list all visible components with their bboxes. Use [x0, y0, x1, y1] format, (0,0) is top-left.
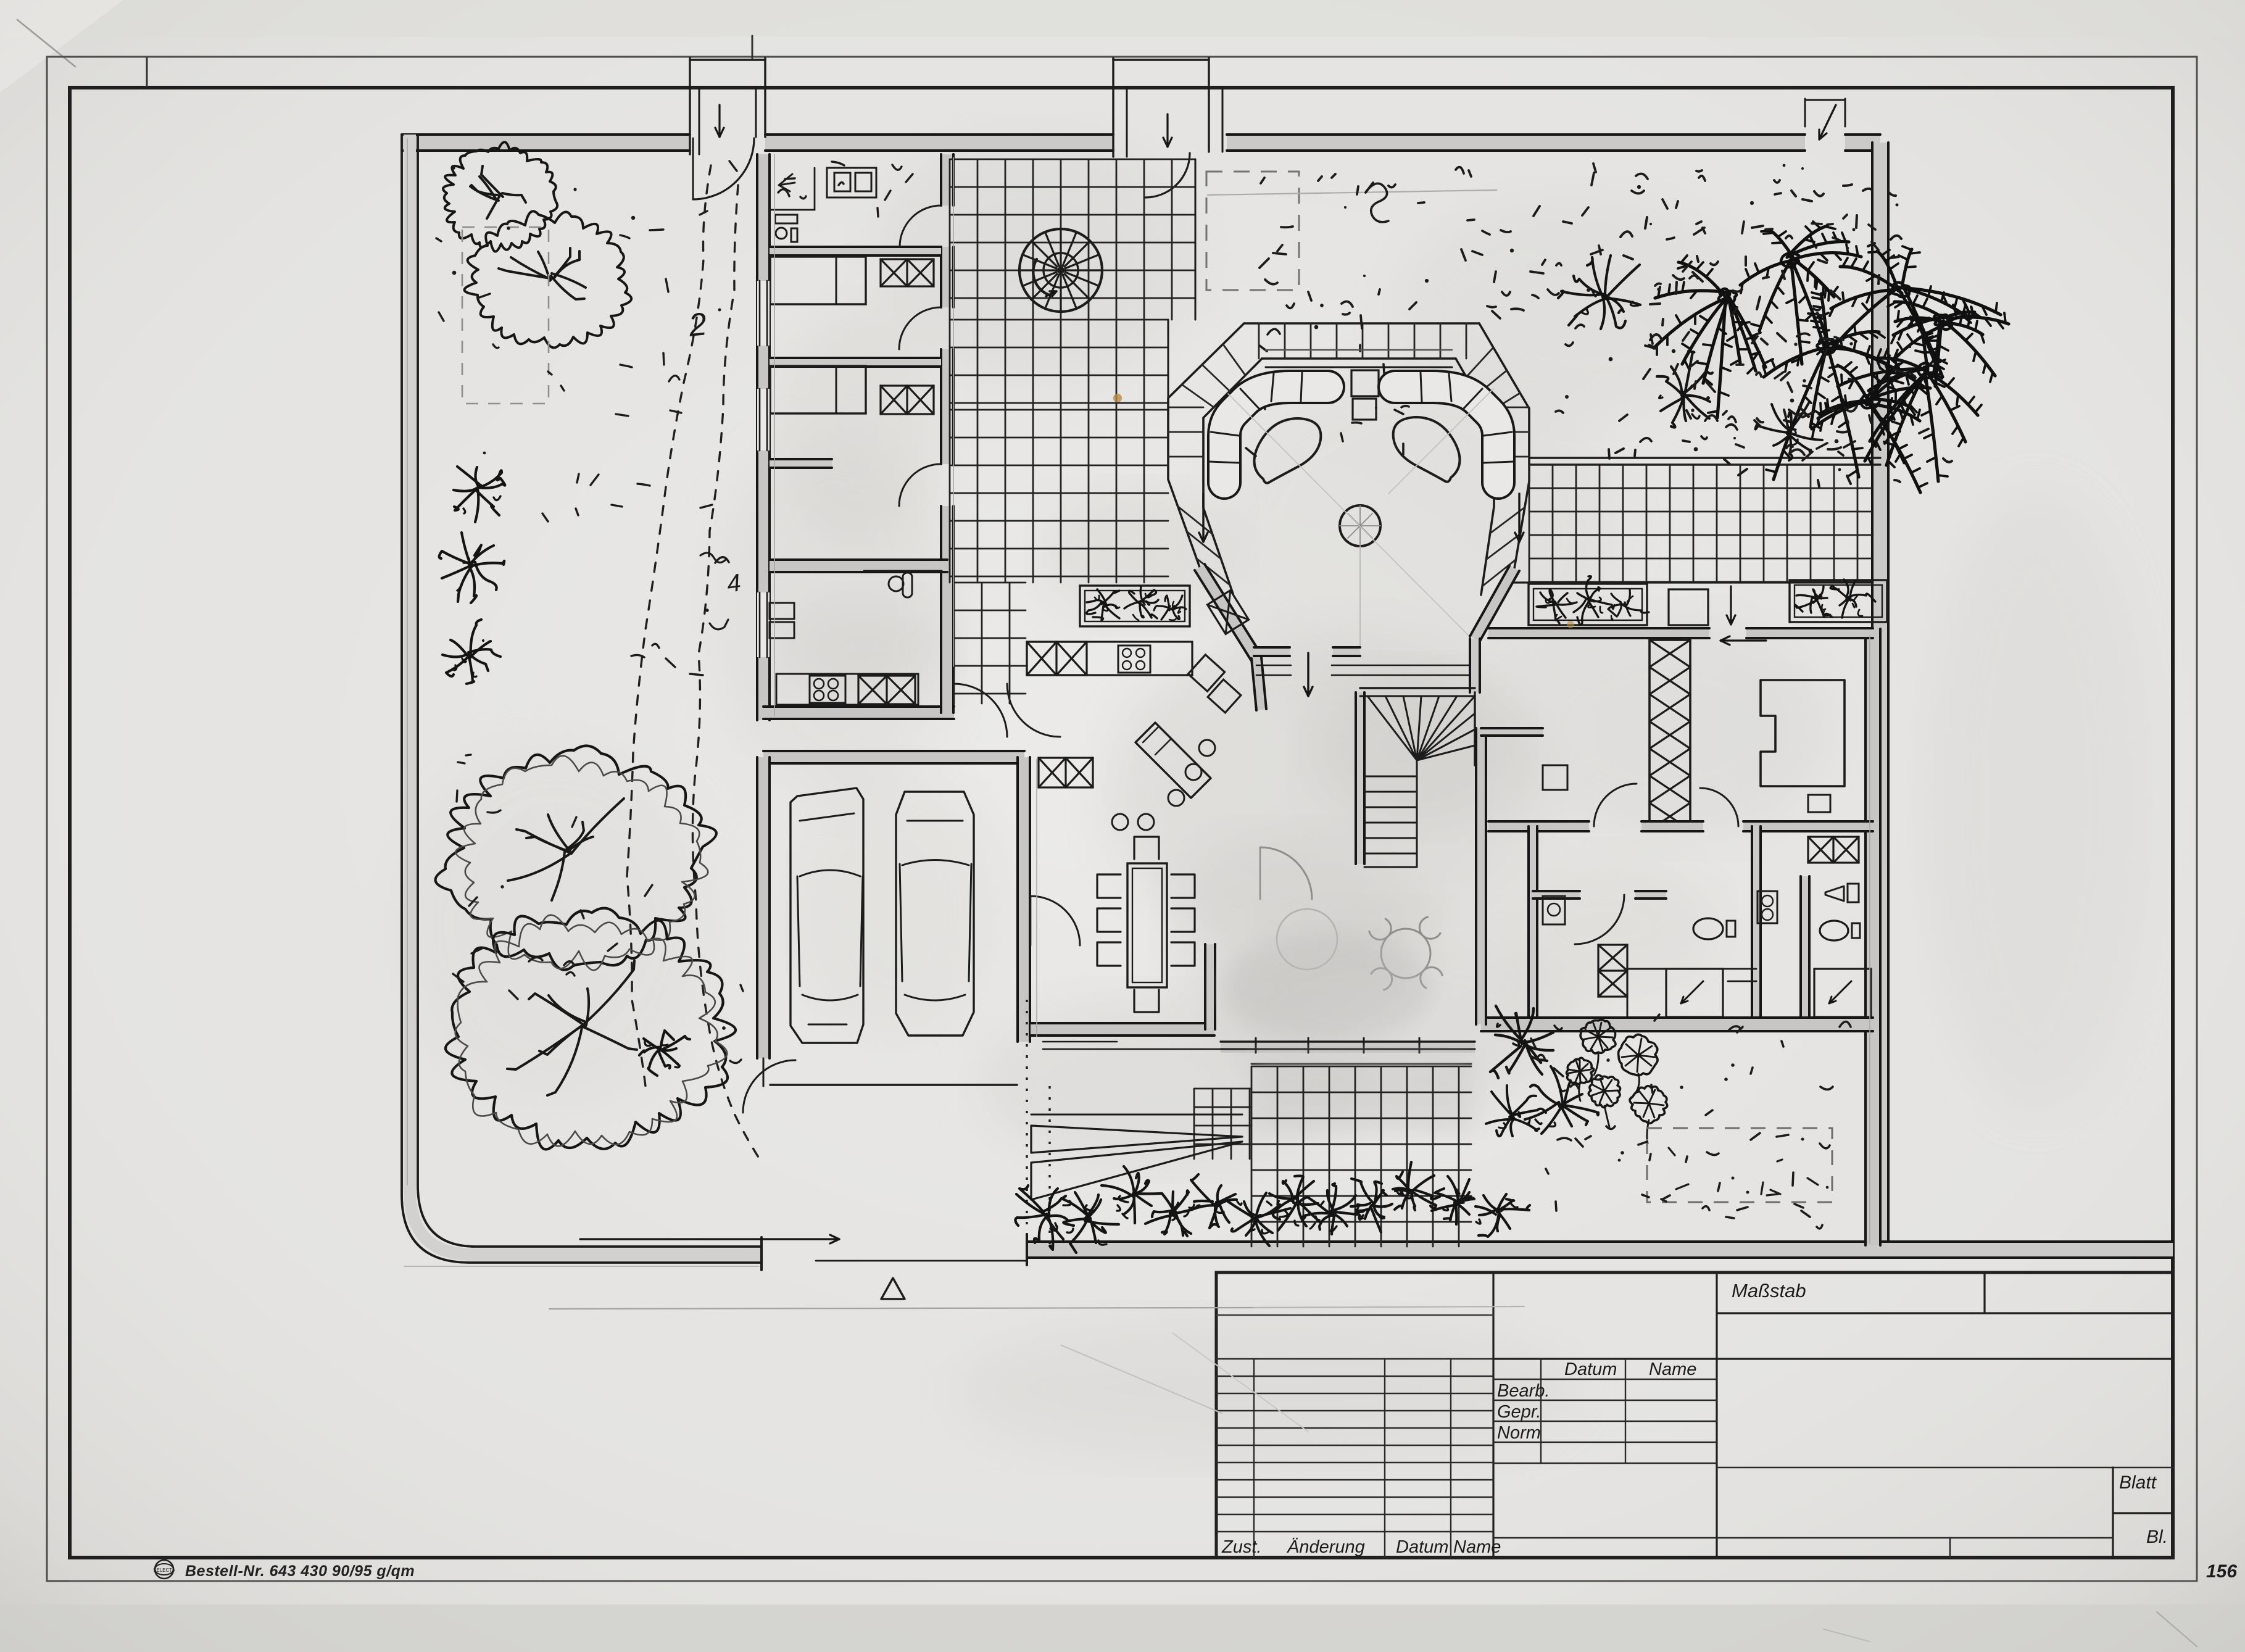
svg-text:Name: Name	[1649, 1359, 1696, 1379]
svg-text:Zust.: Zust.	[1221, 1537, 1261, 1557]
svg-text:Name: Name	[1453, 1537, 1501, 1557]
svg-text:Datum: Datum	[1396, 1537, 1448, 1557]
svg-text:Maßstab: Maßstab	[1732, 1280, 1806, 1301]
svg-text:Bestell-Nr. 643 430 90/95 g: Bestell-Nr. 643 430 90/95 g/qm	[185, 1563, 415, 1580]
svg-text:Bl.: Bl.	[2146, 1527, 2168, 1547]
svg-text:2: 2	[686, 306, 708, 344]
svg-text:Norm: Norm	[1497, 1423, 1541, 1443]
svg-text:Blatt: Blatt	[2119, 1472, 2157, 1493]
svg-text:Änderung: Änderung	[1286, 1537, 1365, 1557]
svg-text:Bearb.: Bearb.	[1497, 1381, 1550, 1401]
svg-text:Gepr.: Gepr.	[1497, 1402, 1541, 1422]
svg-text:Datum: Datum	[1564, 1359, 1617, 1379]
svg-text:156: 156	[2206, 1561, 2237, 1582]
svg-text:SELECTA: SELECTA	[153, 1567, 176, 1573]
